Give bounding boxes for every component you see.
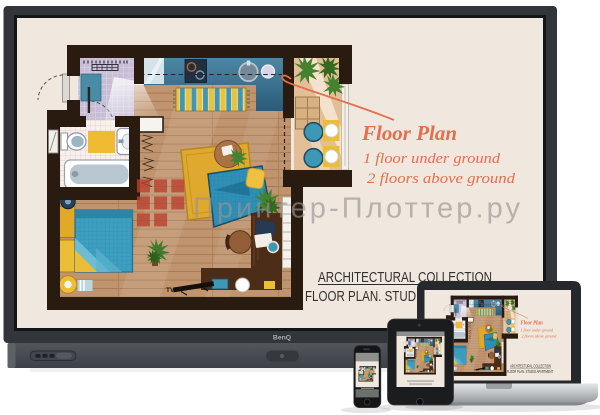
svg-text:TV: TV: [166, 287, 175, 294]
svg-text:1 floor under ground: 1 floor under ground: [363, 151, 501, 167]
svg-text:2 floors above ground: 2 floors above ground: [367, 171, 516, 187]
svg-text:Floor Plan: Floor Plan: [361, 121, 457, 145]
svg-text:Принтер-Плоттер.ру: Принтер-Плоттер.ру: [193, 193, 521, 225]
svg-text:BenQ: BenQ: [273, 335, 291, 342]
